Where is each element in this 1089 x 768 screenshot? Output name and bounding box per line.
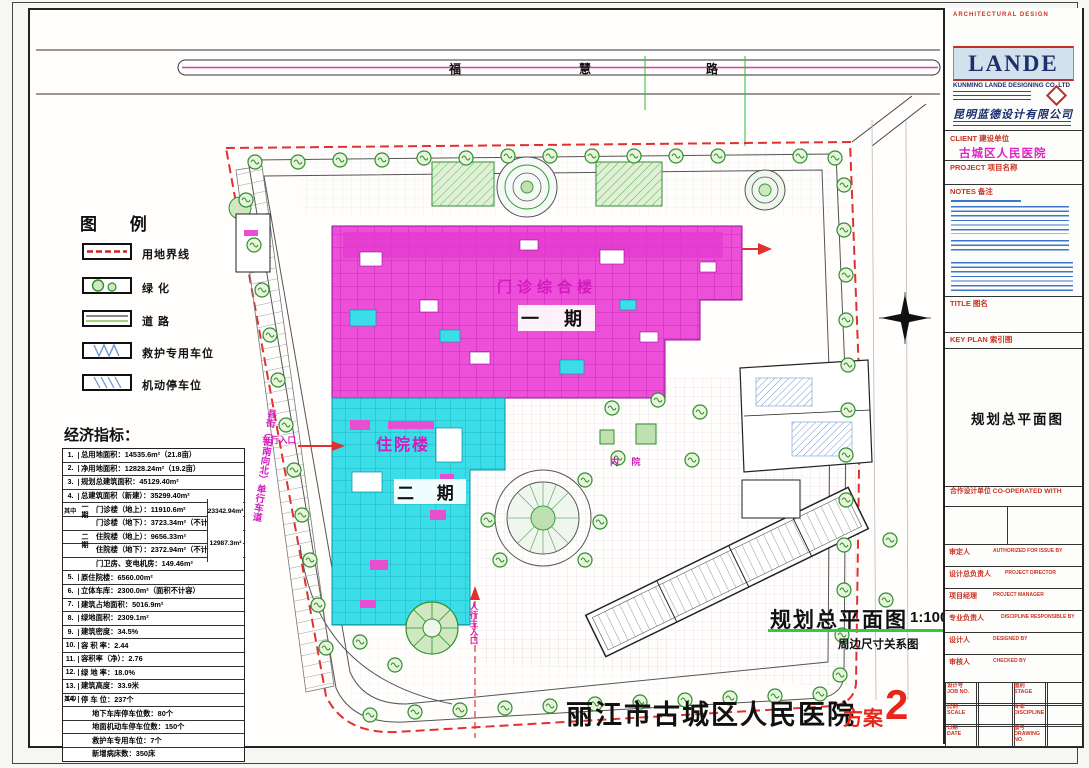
keyplan-label: KEY PLAN 索引图: [950, 334, 1012, 345]
phase1-label: 一期: [79, 503, 89, 519]
legend-label: 道 路: [142, 313, 170, 329]
central-plaza: [495, 470, 591, 566]
title-label: TITLE 图名: [950, 298, 988, 309]
phase1-plan-label: 一 期: [518, 305, 595, 331]
notes-label: NOTES 备注: [950, 186, 993, 197]
field-row: 项目经理PROJECT MANAGER: [945, 588, 1082, 611]
notes-heading-line: [951, 200, 1021, 202]
scheme-label: 方案: [843, 702, 883, 731]
inpatient-tag: [388, 421, 434, 429]
vehicle-entrance-arrow-right: [742, 243, 772, 255]
table-row: 14.停 车 位：237个: [63, 694, 244, 708]
grid-value: [1045, 724, 1084, 747]
gate-mark: [244, 230, 258, 236]
notes-fineprint: [951, 262, 1073, 292]
drawing-sheet: 福 慧 路 图 例 用地界线 绿 化 道 路 救护专用车位 机动停车位 经济指标…: [0, 0, 1089, 768]
legend-title: 图 例: [80, 210, 161, 235]
client-value: 古城区人民医院: [959, 145, 1047, 161]
outpatient-building-label: 门诊综合楼: [497, 276, 597, 297]
field-row: 专业负责人DISCIPLINE RESPONSIBLE BY: [945, 610, 1082, 633]
notes-fineprint: [951, 206, 1069, 234]
table-row: 12.绿 地 率：18.0%: [63, 667, 244, 681]
courtyard-hedge: [636, 424, 656, 444]
project-title: 丽江市古城区人民医院: [566, 693, 856, 732]
fountain-plaza: [497, 157, 557, 217]
city-road: [36, 50, 940, 146]
legend-swatch-ambulance-parking-icon: [82, 342, 132, 359]
economic-table: 1.总用地面积：14535.6m²（21.8亩） 2.净用地面积：12828.2…: [62, 448, 245, 762]
courtyard-label: 内 院: [610, 455, 646, 468]
divider: [945, 160, 1082, 161]
divider: [945, 348, 1082, 349]
table-row: 13.建筑高度：33.9米: [63, 680, 244, 694]
field-row: 审核人CHECKED BY: [945, 654, 1082, 681]
field-row: 审定人AUTHORIZED FOR ISSUE BY: [945, 544, 1082, 567]
hedge-hatch: [596, 162, 662, 206]
certificate-fineprint: [953, 121, 1071, 126]
company-name-cn: 昆明蓝德设计有限公司: [953, 106, 1073, 122]
title-underline: [768, 629, 966, 632]
sheet-title: 规划总平面图: [971, 408, 1064, 428]
divider: [945, 130, 1082, 131]
among-label: 其中: [64, 694, 76, 703]
phase2-label: 二期: [79, 533, 89, 549]
title-block: ARCHITECTURAL DESIGN LANDE KUNMING LANDE…: [943, 8, 1082, 744]
hedge-hatch: [432, 162, 494, 206]
inpatient-building-label: 住院楼: [376, 431, 430, 455]
client-label: CLIENT 建设单位: [950, 133, 1009, 144]
logo-text: LANDE: [968, 51, 1059, 77]
legend-label: 机动停车位: [142, 377, 202, 393]
table-row: 5.原住院楼：6560.00m²: [63, 571, 244, 585]
utility-building: [742, 480, 800, 518]
among-label: 其中: [64, 506, 76, 515]
discipline-header: ARCHITECTURAL DESIGN: [953, 12, 1049, 18]
grid-label: 日期DATE: [945, 724, 979, 747]
table-row: 9.建筑密度：34.5%: [63, 626, 244, 640]
project-label: PROJECT 项目名称: [950, 162, 1018, 173]
phase2-total: 12987.3m²: [207, 524, 243, 562]
north-compass-icon: [879, 292, 931, 344]
drawing-subtitle: 周边尺寸关系图: [838, 636, 919, 652]
table-row: 8.绿地面积：2309.1m²: [63, 612, 244, 626]
legend-swatch-parking-icon: [82, 374, 132, 391]
divider: [945, 296, 1082, 297]
divider: [945, 332, 1082, 333]
company-logo: LANDE: [953, 46, 1074, 81]
road-char: 慧: [579, 60, 591, 77]
phase2-plan-label: 二 期: [394, 479, 466, 504]
table-row: 救护车专用车位：7个: [63, 734, 244, 748]
company-address-fineprint: [953, 91, 1031, 103]
legend-swatch-boundary-icon: [82, 243, 132, 260]
field-row: 设计总负责人PROJECT DIRECTOR: [945, 566, 1082, 589]
table-row: 6.立体车库：2300.0m²（面积不计容）: [63, 585, 244, 599]
legend-swatch-road-icon: [82, 310, 132, 327]
table-row: 7.建筑占地面积：5016.9m²: [63, 599, 244, 613]
legend-swatch-green-icon: [82, 277, 132, 294]
table-row: 11.容积率（净）：2.76: [63, 653, 244, 667]
legend-label: 救护专用车位: [142, 345, 214, 361]
legend-label: 用地界线: [142, 246, 190, 262]
divider: [945, 184, 1082, 185]
table-row: 1.总用地面积：14535.6m²（21.8亩）: [63, 449, 244, 463]
divider: [945, 486, 1082, 487]
grid-value: [976, 724, 1015, 747]
field-row: 设计人DESIGNED BY: [945, 632, 1082, 655]
scheme-number: 2: [885, 684, 908, 726]
courtyard-hedge: [600, 430, 614, 444]
legend-label: 绿 化: [142, 280, 170, 296]
table-row: 地下车库停车位数：80个: [63, 707, 244, 721]
grid-label: 图号DRAWING NO.: [1012, 724, 1048, 747]
coop-split-box: [945, 506, 1082, 545]
table-row: 新增病床数：350床: [63, 748, 244, 761]
table-row: 地面机动车停车位数：150个: [63, 721, 244, 735]
table-row: 3.规划总建筑面积：45129.40m²: [63, 476, 244, 490]
table-row: 10.容 积 率：2.44: [63, 639, 244, 653]
main-entrance-label: 人行主入口: [468, 602, 480, 645]
table-row: 2.净用地面积：12828.24m²（19.2亩）: [63, 463, 244, 477]
coop-label: 合作设计单位 CO-OPERATED WITH: [950, 488, 1075, 497]
phase1-total: 23342.94m²: [207, 499, 243, 524]
split-divider: [1007, 506, 1008, 544]
road-char: 福: [449, 60, 461, 77]
road-char: 路: [706, 60, 718, 77]
garden-circle-topright: [745, 170, 785, 210]
notes-fineprint: [951, 240, 1069, 254]
garden-circle: [406, 602, 458, 654]
economic-title: 经济指标：: [64, 424, 139, 445]
